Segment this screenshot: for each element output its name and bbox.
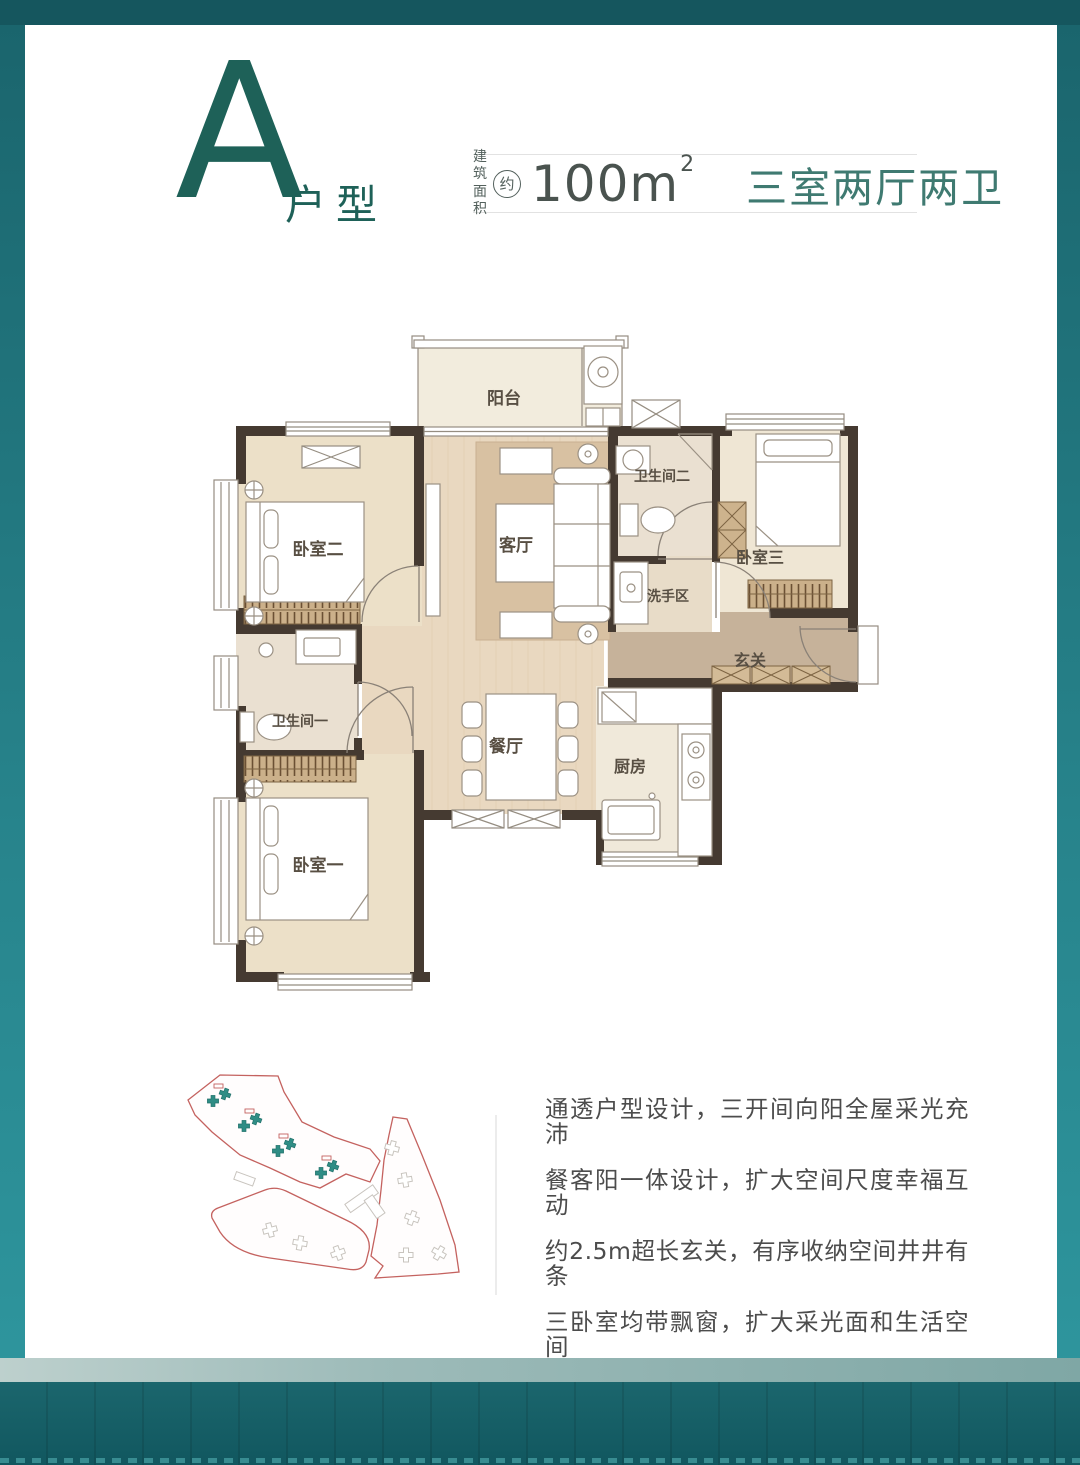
description-line: 三卧室均带飘窗，扩大采光面和生活空间 xyxy=(545,1310,969,1360)
description-line: 通透户型设计，三开间向阳全屋采光充沛 xyxy=(545,1097,969,1147)
room-label-dining: 餐厅 xyxy=(489,736,523,757)
frame-bottom-dark-band xyxy=(0,1382,1080,1465)
room-label-bath1: 卫生间一 xyxy=(272,713,328,730)
frame-top-bar xyxy=(0,0,1080,25)
room-label-bedroom3: 卧室三 xyxy=(736,548,784,567)
room-label-bath2: 卫生间二 xyxy=(634,468,690,485)
area-info-block: 建筑 面积 约 100m 2 三室两厅两卫 xyxy=(473,154,917,213)
description-line: 餐客阳一体设计，扩大空间尺度幸福互动 xyxy=(545,1168,969,1218)
poster-page: A 户型 建筑 面积 约 100m 2 三室两厅两卫 xyxy=(0,0,1080,1465)
room-label-foyer: 玄关 xyxy=(734,651,766,670)
room-label-wash-area: 洗手区 xyxy=(647,588,689,605)
room-label-bedroom1: 卧室一 xyxy=(293,855,344,876)
rooms-summary: 三室两厅两卫 xyxy=(746,154,1004,214)
area-label-line1: 建筑 xyxy=(473,149,488,184)
area-label: 建筑 面积 xyxy=(473,149,488,219)
room-label-balcony: 阳台 xyxy=(487,388,521,409)
description-line: 约2.5m超长玄关，有序收纳空间井井有条 xyxy=(545,1239,969,1289)
content-panel: A 户型 建筑 面积 约 100m 2 三室两厅两卫 xyxy=(25,25,1057,1358)
room-label-living: 客厅 xyxy=(498,535,533,556)
area-value: 100m xyxy=(531,155,679,213)
unit-type-label: 户型 xyxy=(285,171,387,231)
site-outlines xyxy=(188,1075,459,1278)
room-label-kitchen: 厨房 xyxy=(614,757,646,776)
area-approx-circle: 约 xyxy=(493,170,521,198)
area-label-line2: 面积 xyxy=(473,184,488,219)
floor-plan: 阳台 卧室二 客厅 卫生间二 卧室三 洗手区 玄关 卫生间一 餐厅 厨房 卧室一 xyxy=(200,330,880,1010)
site-plan xyxy=(150,1060,530,1340)
room-label-bedroom2: 卧室二 xyxy=(293,539,344,560)
area-superscript: 2 xyxy=(680,152,694,177)
frame-bottom-light-band xyxy=(0,1358,1080,1382)
